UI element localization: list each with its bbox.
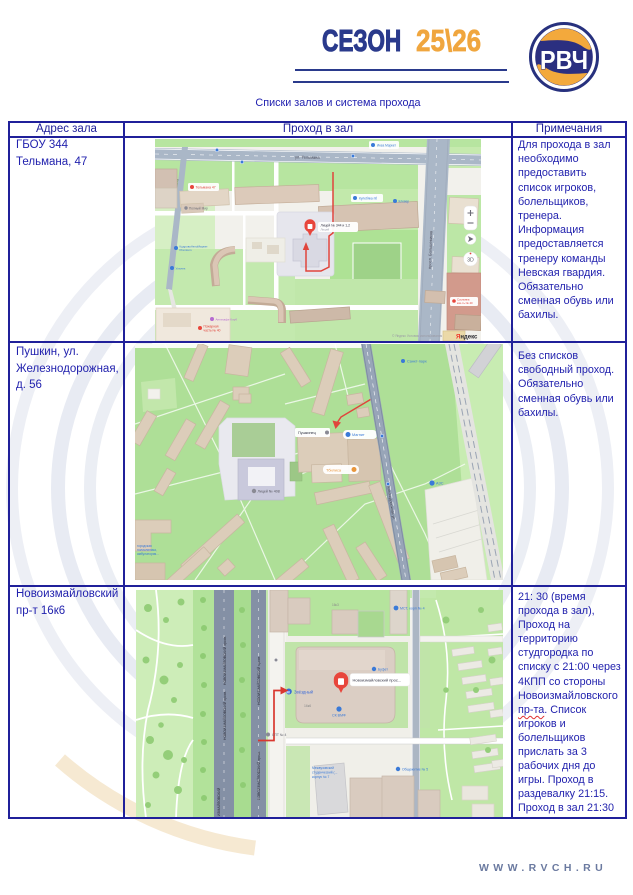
svg-text:РВЧ: РВЧ [540,47,588,75]
